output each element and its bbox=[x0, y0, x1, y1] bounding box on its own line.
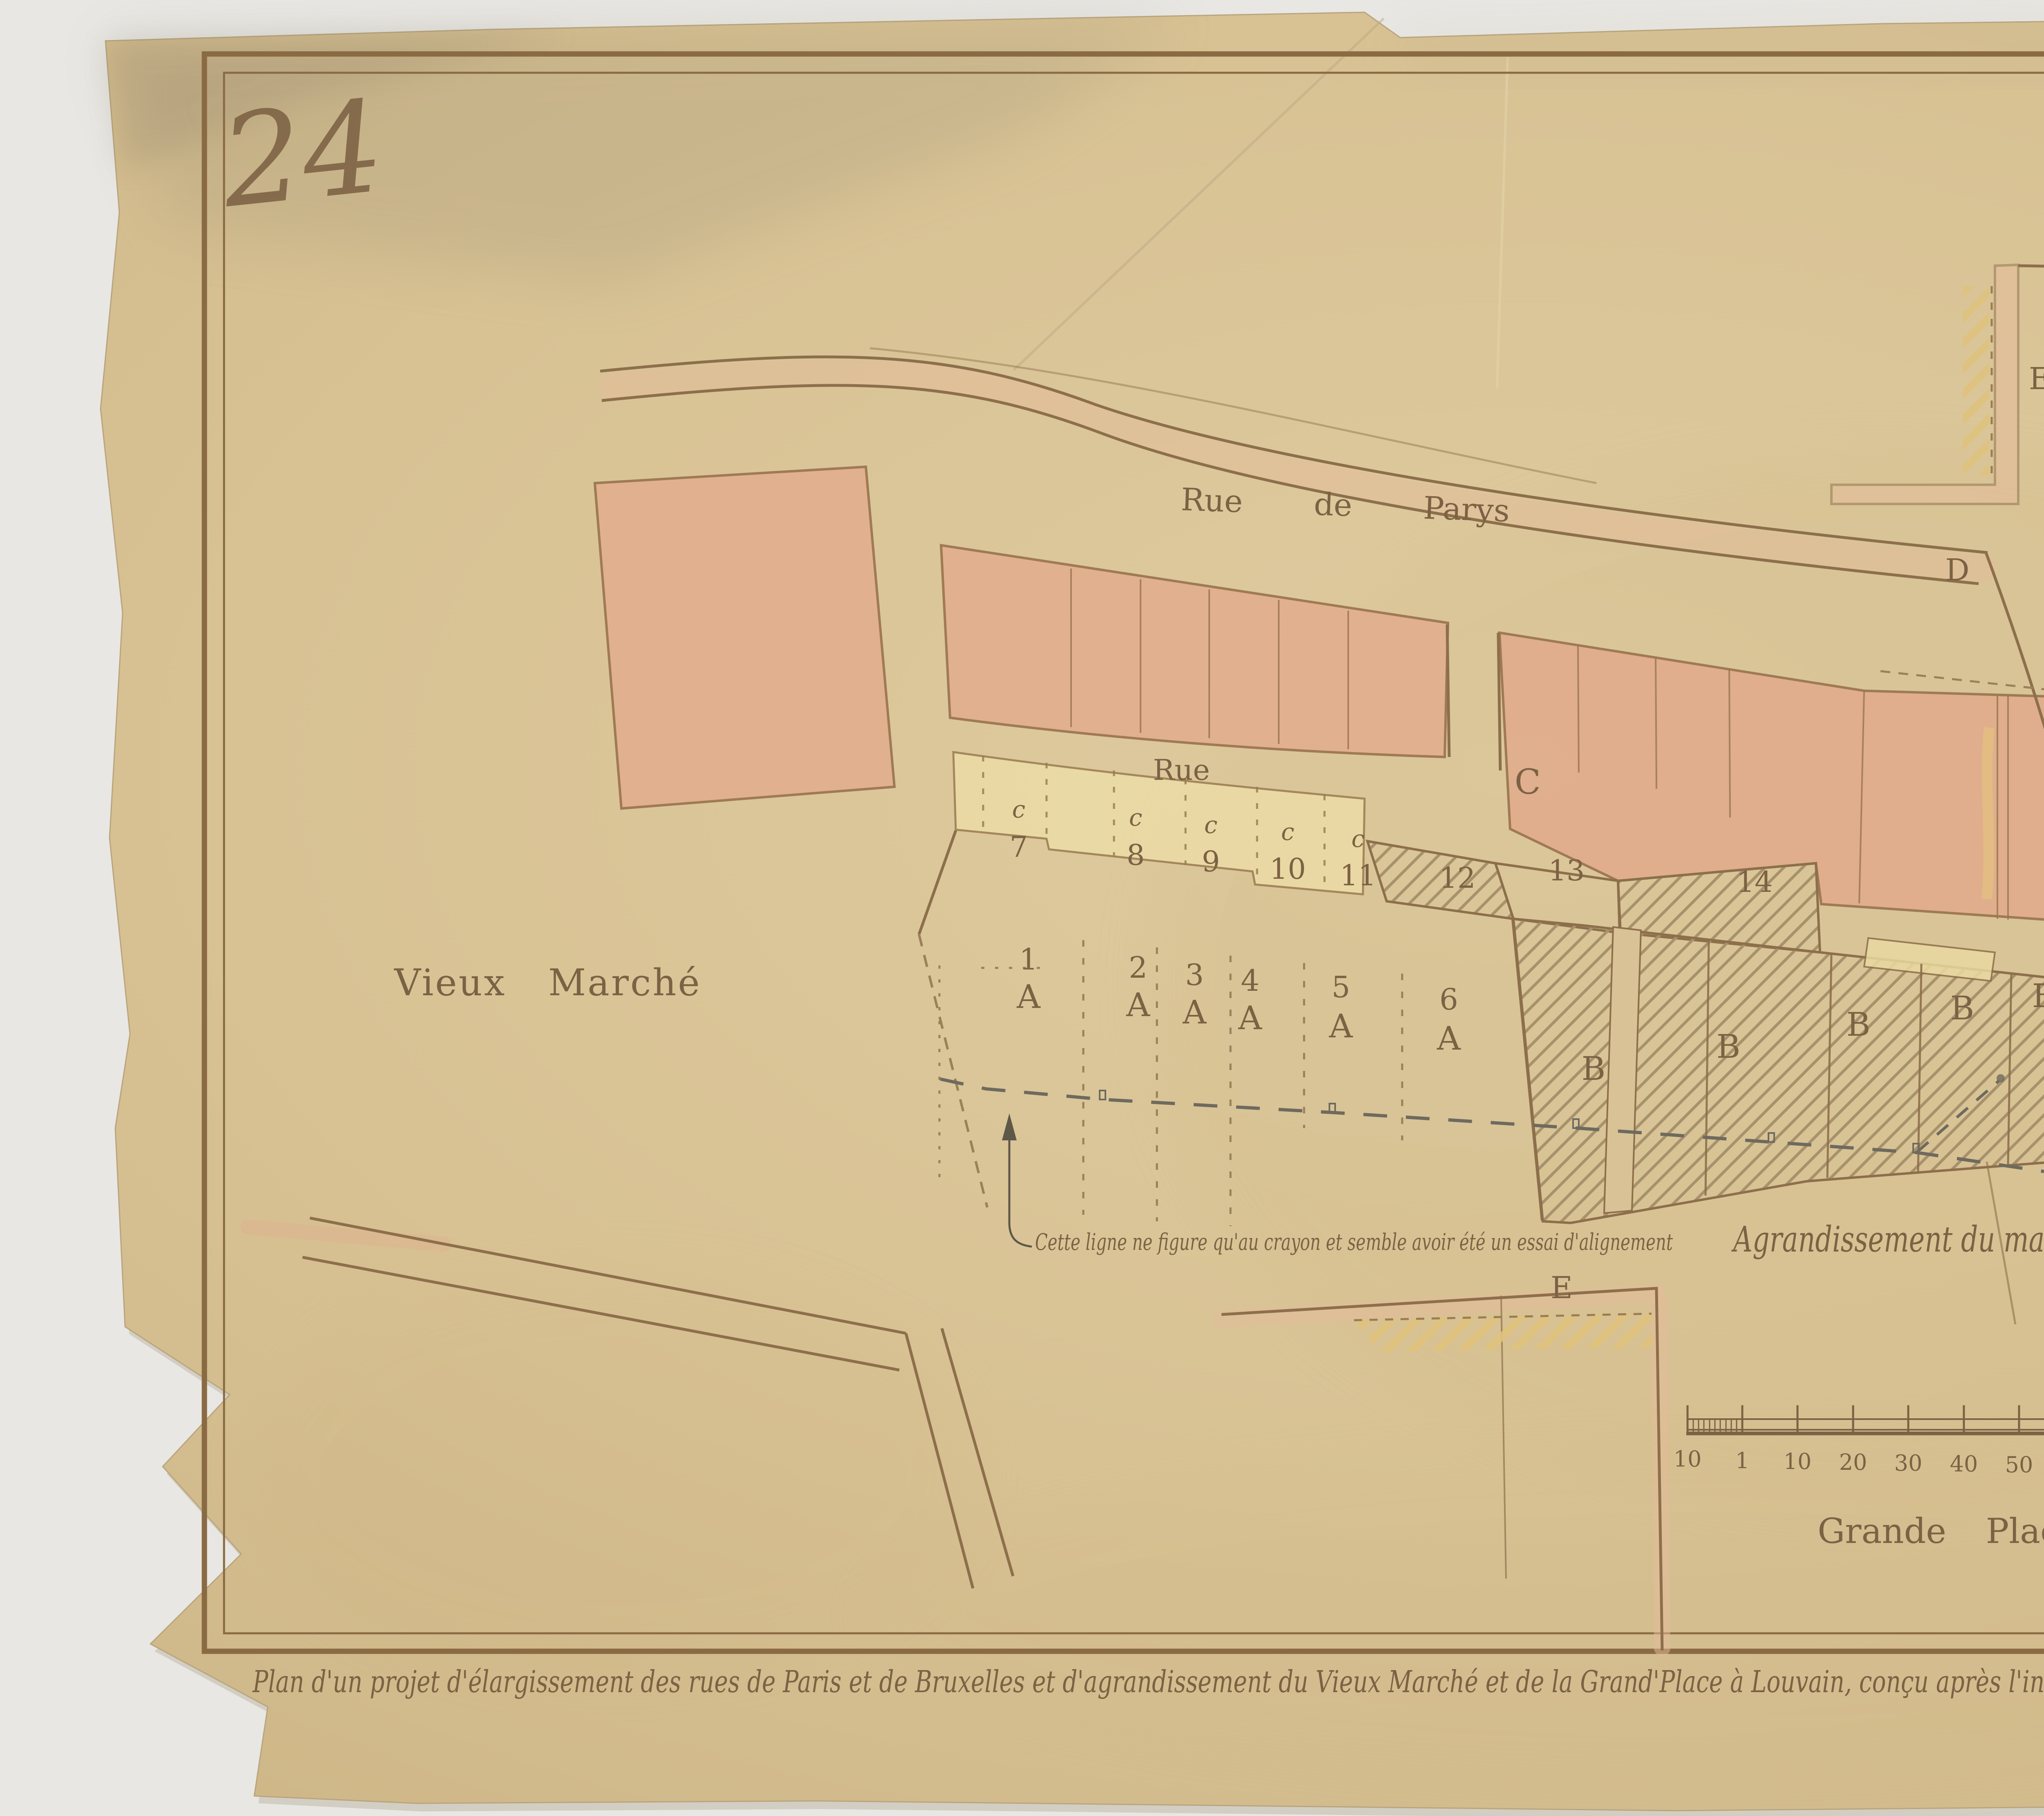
plot-letter: A bbox=[1182, 993, 1207, 1031]
plot-num-13: 13 bbox=[1548, 854, 1585, 887]
plot-num: 8 bbox=[1127, 838, 1145, 872]
plot-letter: A bbox=[1126, 986, 1150, 1024]
zone-letter-b: B bbox=[1847, 1005, 1871, 1043]
pencil-line-note: Cette ligne ne figure qu'au crayon et se… bbox=[1035, 1229, 1673, 1256]
south-yellow-wedge bbox=[1354, 1314, 1652, 1352]
plot-num: 9 bbox=[1202, 845, 1220, 878]
yellow-hatch-strip bbox=[1963, 286, 1989, 475]
scale-tick-label: 10 bbox=[1784, 1449, 1812, 1474]
zone-letter-e-bottom: E bbox=[1551, 1270, 1573, 1305]
label-grande-place: Grande Place bbox=[1818, 1511, 2044, 1551]
zone-letter-b: B bbox=[1582, 1050, 1606, 1088]
plot-num: 3 bbox=[1185, 958, 1204, 992]
zone-letter-e-top: E bbox=[2029, 361, 2044, 396]
plot-num: 7 bbox=[1010, 830, 1028, 864]
lane-east-edge bbox=[1498, 633, 1500, 770]
scale-tick-label: 50 bbox=[2005, 1452, 2033, 1478]
plot-num: 10 bbox=[1269, 852, 1306, 886]
label-vieux-marche: Vieux Marché bbox=[394, 961, 701, 1004]
zone-letter-b: B bbox=[1950, 989, 1975, 1027]
caption-title: Plan d'un projet d'élargissement des rue… bbox=[252, 1664, 2044, 1700]
zone-letter-b: B bbox=[1717, 1028, 1741, 1066]
plot-num: 6 bbox=[1439, 982, 1458, 1017]
plot-letter-c: c bbox=[1012, 795, 1025, 823]
plan-canvas: 24 24 A Maisons dont le terrein est à aq… bbox=[0, 0, 2044, 1816]
plot-num-12: 12 bbox=[1439, 861, 1475, 895]
plot-num: 4 bbox=[1241, 963, 1260, 998]
scale-tick-label: 40 bbox=[1950, 1451, 1978, 1477]
plot-letter-c: c bbox=[1351, 825, 1365, 853]
plot-letter-c: c bbox=[1204, 811, 1217, 839]
label-agrandissement: Agrandissement du marché. bbox=[1731, 1219, 2044, 1260]
plot-letter: A bbox=[1016, 978, 1041, 1016]
plot-letter: A bbox=[1437, 1019, 1461, 1057]
scale-tick-label: 1 bbox=[1735, 1448, 1749, 1473]
zone-letter-c-large: C bbox=[1515, 762, 1541, 802]
plot-letter: A bbox=[1329, 1007, 1353, 1045]
plot-num: 5 bbox=[1331, 970, 1350, 1004]
plot-letter: A bbox=[1238, 999, 1262, 1037]
plot-num: 2 bbox=[1129, 950, 1148, 985]
block-northwest bbox=[595, 467, 894, 808]
plot-letter-c: c bbox=[1129, 804, 1142, 831]
scale-tick-label: 20 bbox=[1839, 1449, 1867, 1475]
plot-letter-c: c bbox=[1281, 818, 1294, 846]
zone-letter-b: B bbox=[2032, 977, 2044, 1015]
plot-num: 11 bbox=[1340, 859, 1376, 892]
scanned-plan-document: 24 24 A Maisons dont le terrein est à aq… bbox=[0, 0, 2044, 1816]
scale-tick-label: 10 bbox=[1674, 1446, 1702, 1472]
inventory-number-left: 24 bbox=[213, 73, 390, 237]
scale-tick-label: 30 bbox=[1894, 1450, 1923, 1476]
lane-west-edge bbox=[1447, 625, 1449, 757]
yellow-squiggle bbox=[1987, 728, 1989, 899]
plot-num: 1 bbox=[1019, 942, 1038, 976]
label-rue: Rue bbox=[1153, 753, 1210, 787]
zone-letter-d-upper: D bbox=[1945, 553, 1969, 588]
plot-num-14: 14 bbox=[1736, 865, 1773, 899]
